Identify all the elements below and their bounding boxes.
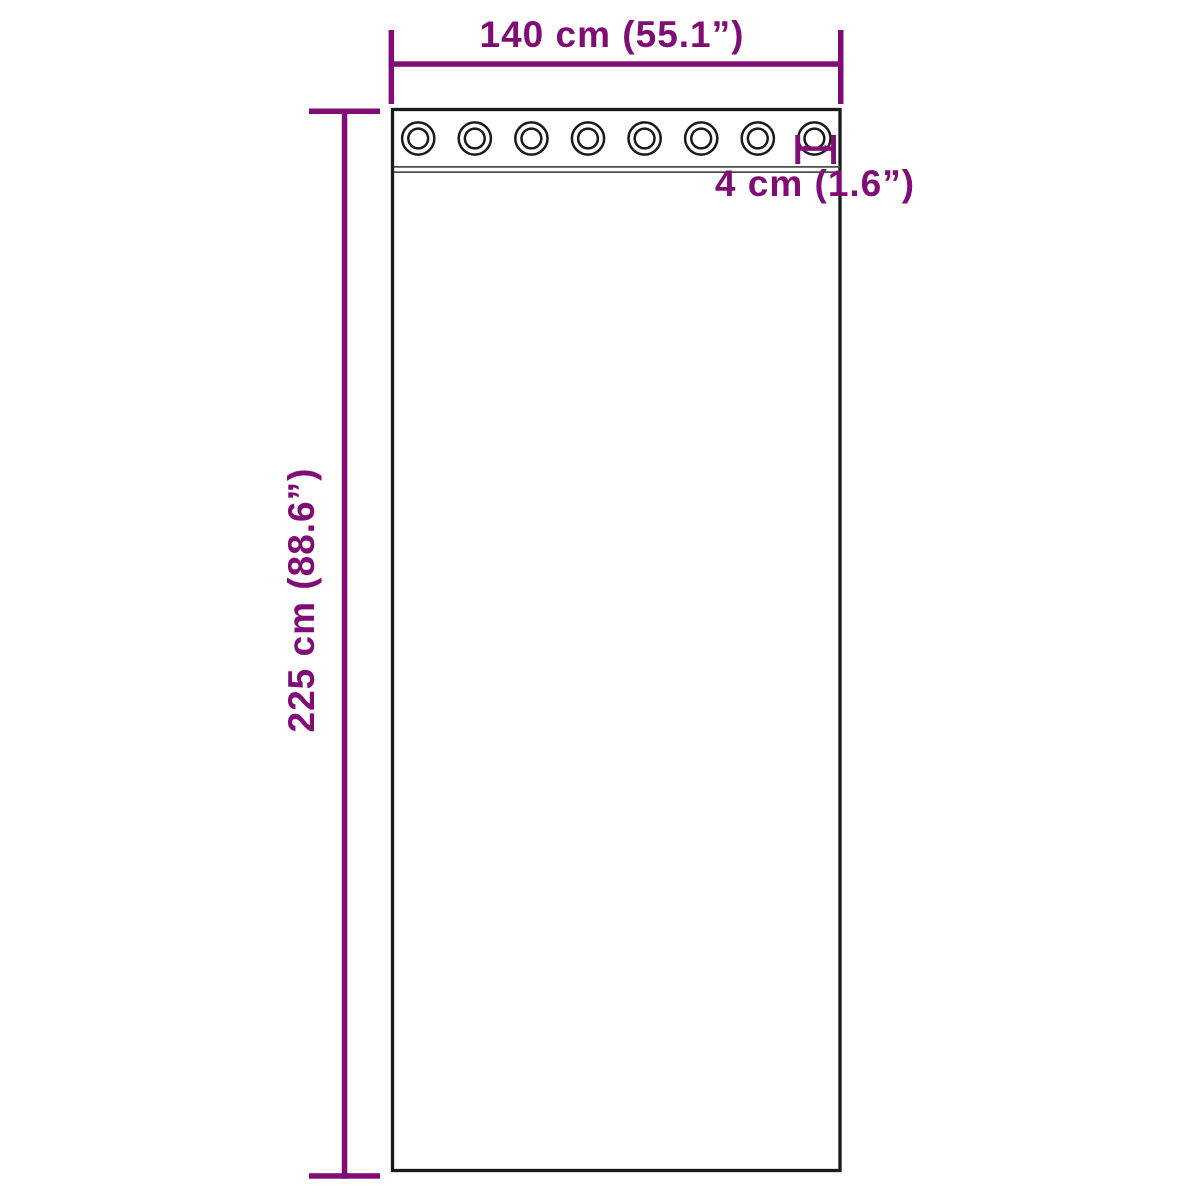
svg-text:225 cm (88.6”): 225 cm (88.6”)	[281, 468, 322, 733]
svg-text:140 cm (55.1”): 140 cm (55.1”)	[480, 14, 745, 55]
svg-text:4 cm (1.6”): 4 cm (1.6”)	[715, 163, 915, 204]
